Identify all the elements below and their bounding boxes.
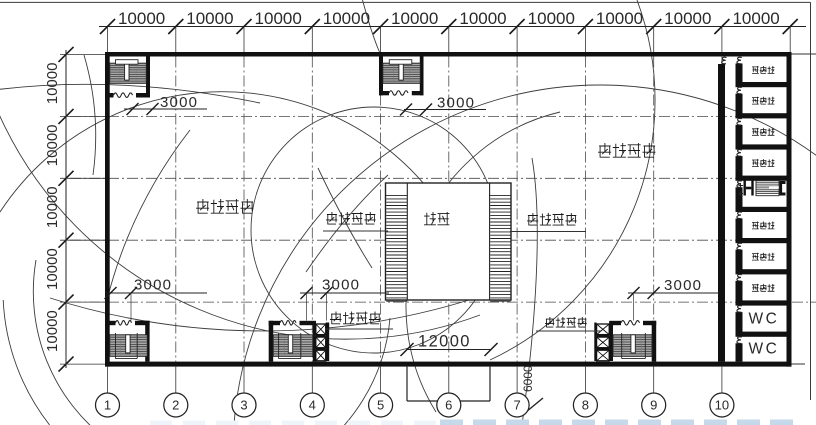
svg-text:9: 9 <box>650 398 657 413</box>
svg-text:10000: 10000 <box>732 9 779 28</box>
svg-text:10000: 10000 <box>459 9 506 28</box>
svg-text:4: 4 <box>309 398 316 413</box>
svg-text:6: 6 <box>445 398 452 413</box>
svg-text:3000: 3000 <box>664 277 702 294</box>
svg-text:10000: 10000 <box>596 9 643 28</box>
svg-text:10000: 10000 <box>391 9 438 28</box>
svg-text:10000: 10000 <box>528 9 575 28</box>
svg-text:10000: 10000 <box>186 9 233 28</box>
svg-text:1: 1 <box>104 398 111 413</box>
svg-text:8: 8 <box>582 398 589 413</box>
svg-text:3: 3 <box>240 398 247 413</box>
svg-text:3000: 3000 <box>322 277 360 294</box>
svg-text:WC: WC <box>749 310 780 327</box>
svg-text:7: 7 <box>513 398 520 413</box>
svg-text:12000: 12000 <box>418 333 471 351</box>
svg-text:10: 10 <box>715 398 729 413</box>
svg-text:3000: 3000 <box>160 94 198 111</box>
svg-text:10000: 10000 <box>255 9 302 28</box>
svg-text:10000: 10000 <box>118 9 165 28</box>
svg-text:2: 2 <box>172 398 179 413</box>
svg-text:3000: 3000 <box>134 277 172 294</box>
svg-text:10000: 10000 <box>44 63 61 105</box>
svg-text:WC: WC <box>749 341 780 358</box>
svg-text:10000: 10000 <box>44 248 61 290</box>
svg-text:3000: 3000 <box>437 95 475 112</box>
svg-text:10000: 10000 <box>323 9 370 28</box>
svg-text:10000: 10000 <box>44 186 61 228</box>
svg-text:10000: 10000 <box>44 310 61 352</box>
svg-text:10000: 10000 <box>44 124 61 166</box>
svg-text:6000: 6000 <box>521 365 535 392</box>
svg-text:10000: 10000 <box>664 9 711 28</box>
svg-text:5: 5 <box>377 398 384 413</box>
